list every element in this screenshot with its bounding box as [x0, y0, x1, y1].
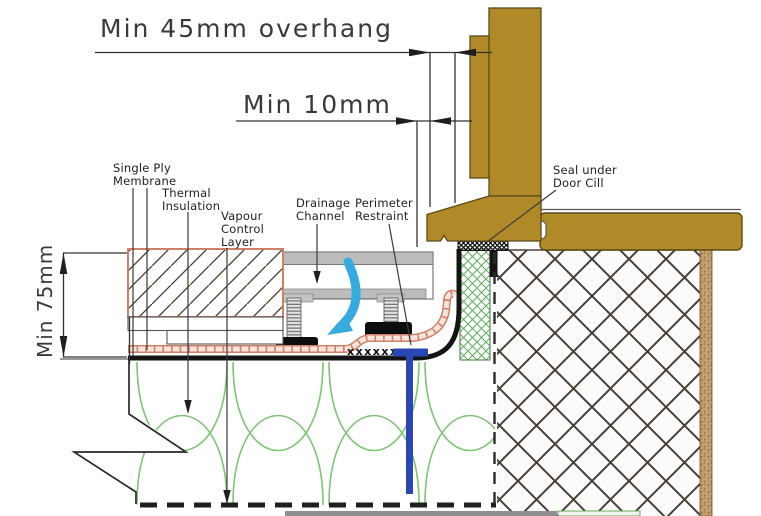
dim-arrow [396, 117, 417, 125]
membrane-fixing-marks: xxxxxx [347, 345, 399, 358]
label-single-ply-line1: Single Ply [113, 161, 171, 175]
door-leaf [489, 8, 541, 196]
threshold-detail-drawing: xxxxxx Min 45mm overhang Min 10mm [0, 0, 761, 516]
label-drainage-line1: Drainage [296, 196, 350, 210]
restraint-plate [393, 349, 428, 357]
upstand-insulation-strip [460, 250, 490, 360]
deck-green-strip [558, 511, 640, 516]
restraint-stem [406, 356, 413, 494]
door-cill [427, 196, 541, 241]
label-seal-line2: Door Cill [553, 176, 604, 190]
label-seal-line1: Seal under [553, 163, 617, 177]
floor-deck [540, 213, 742, 250]
label-vcl-line2: Control [221, 222, 264, 236]
door-assembly [427, 8, 541, 241]
detail-svg: xxxxxx Min 45mm overhang Min 10mm [0, 0, 761, 516]
packer-board-lower [167, 331, 283, 345]
paving-slab-hatch [128, 249, 283, 317]
pedestal-screw-left [287, 298, 301, 338]
interior-floor [533, 210, 742, 251]
label-drainage-line2: Channel [296, 209, 345, 223]
dim-arrow [455, 49, 476, 57]
dim-gap-text: Min 10mm [243, 90, 392, 119]
label-perimeter-line1: Perimeter [355, 196, 413, 210]
roof-insulation [58, 362, 495, 516]
insulation-coil-pattern [133, 362, 495, 505]
dim-arrow [60, 253, 68, 274]
inner-wall [497, 250, 712, 516]
label-thermal-line1: Thermal [161, 186, 211, 200]
dim-upstand-text: Min 75mm [33, 244, 57, 358]
label-vcl-line3: Layer [221, 235, 254, 249]
deck-edge-strip [285, 511, 557, 516]
dim-arrow [430, 117, 451, 125]
label-perimeter-line2: Restraint [355, 209, 409, 223]
plaster-finish-strip [700, 250, 712, 516]
wall-blockwork-hatch [497, 250, 700, 516]
seal-under-cill [458, 241, 508, 251]
packer-board-upper [128, 317, 283, 331]
dim-overhang-text: Min 45mm overhang [100, 14, 393, 43]
label-thermal-line2: Insulation [162, 199, 220, 213]
pedestal-screw-right [384, 298, 398, 324]
dim-arrow [60, 336, 68, 357]
dim-arrow [409, 49, 430, 57]
label-vcl-line1: Vapour [221, 209, 263, 223]
